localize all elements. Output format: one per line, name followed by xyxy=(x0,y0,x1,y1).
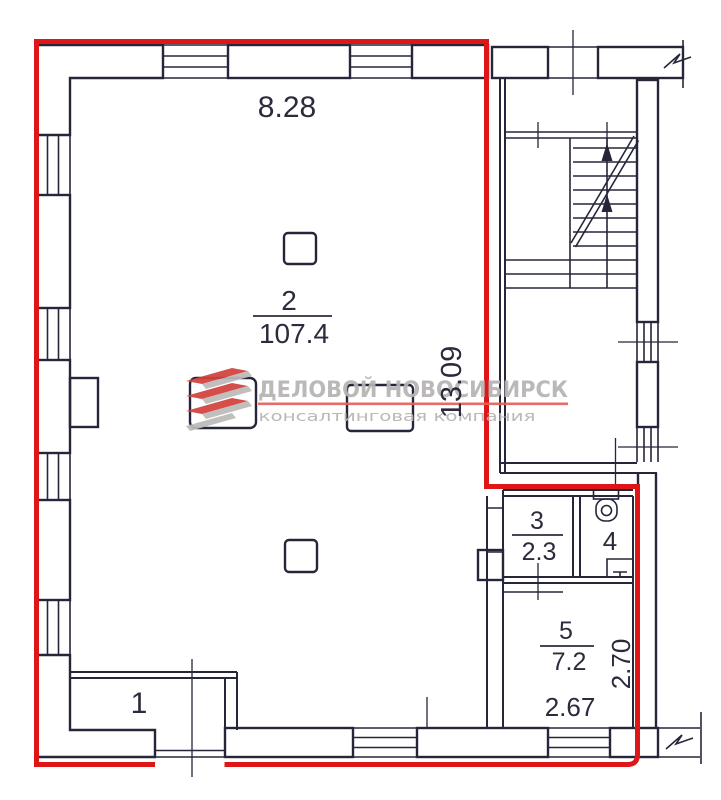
window-left-3 xyxy=(37,453,70,500)
stairwell-bottom-wall xyxy=(500,463,657,473)
rooms345-top-wall xyxy=(503,490,633,496)
room-5-number: 5 xyxy=(559,617,573,645)
column-square-bottom xyxy=(285,540,317,572)
room-4-number: 4 xyxy=(603,526,617,556)
wall-right-block xyxy=(637,80,658,322)
room-3-number: 3 xyxy=(530,507,544,535)
room-3-area: 2.3 xyxy=(522,538,557,566)
room-5-area: 7.2 xyxy=(552,648,587,676)
partition-34-5 xyxy=(503,577,633,583)
watermark-subtitle: консалтинговая компания xyxy=(259,409,536,425)
window-top-2 xyxy=(350,45,412,78)
dim-right-height: 13.09 xyxy=(436,346,468,419)
room1-top-wall xyxy=(70,672,237,678)
break-mark-top-right xyxy=(664,54,691,68)
entrance-opening xyxy=(155,751,225,758)
window-right-2 xyxy=(637,427,658,462)
dim-room5-bottom: 2.67 xyxy=(545,692,596,722)
room-1-number: 1 xyxy=(131,687,148,720)
wall-right-lower xyxy=(638,473,656,728)
stair-landing-ticks xyxy=(538,122,607,148)
window-left-2 xyxy=(37,308,70,360)
stair-up-arrow xyxy=(602,194,613,212)
toilet-bowl xyxy=(596,499,617,521)
window-left-1 xyxy=(37,135,70,195)
wall-bottom-block xyxy=(417,728,548,757)
room1-right-wall xyxy=(225,672,237,730)
partition-3-4 xyxy=(573,496,580,577)
wall-top-block xyxy=(492,47,548,78)
wall-bottom-block xyxy=(610,728,658,757)
window-top-1 xyxy=(163,45,228,78)
wall-left-block xyxy=(37,500,70,600)
wall-left-block xyxy=(37,195,70,308)
stair-landing-line xyxy=(505,132,637,138)
window-bottom-2 xyxy=(548,728,610,757)
wall-right-block xyxy=(637,362,658,427)
axis-right-wall-ticks xyxy=(618,342,678,447)
room-2-number: 2 xyxy=(281,285,297,316)
toilet-bowl-center xyxy=(602,506,612,516)
room-2-area: 107.4 xyxy=(259,318,329,349)
rooms345-left-wall-ticks xyxy=(487,508,503,580)
wall-pier-mid xyxy=(478,550,503,580)
wall-left-block xyxy=(37,360,70,453)
wall-top-block xyxy=(412,45,488,78)
column-square-top xyxy=(284,233,316,264)
window-left-4 xyxy=(37,600,70,655)
stair-up-arrow xyxy=(602,143,613,161)
dim-top-width: 8.28 xyxy=(258,91,316,124)
wall-top-block xyxy=(228,45,350,78)
room-1-vestibule xyxy=(70,659,237,777)
wall-pilaster-left xyxy=(70,378,98,427)
watermark: ДЕЛОВОЙ НОВОСИБИРСК консалтинговая компа… xyxy=(186,368,569,431)
stair-treads-lower xyxy=(505,260,637,288)
wall-bottom-block xyxy=(225,728,353,757)
watermark-title: ДЕЛОВОЙ НОВОСИБИРСК xyxy=(258,375,569,403)
floor-plan: ДЕЛОВОЙ НОВОСИБИРСК консалтинговая компа… xyxy=(0,0,721,800)
watermark-underline xyxy=(258,403,568,406)
dim-room5-right: 2.70 xyxy=(606,639,636,690)
wall-corner-top-left xyxy=(37,45,163,135)
rooms345-left-wall xyxy=(487,490,503,728)
window-bottom-1 xyxy=(353,728,417,757)
break-mark-bottom-right xyxy=(666,735,693,749)
